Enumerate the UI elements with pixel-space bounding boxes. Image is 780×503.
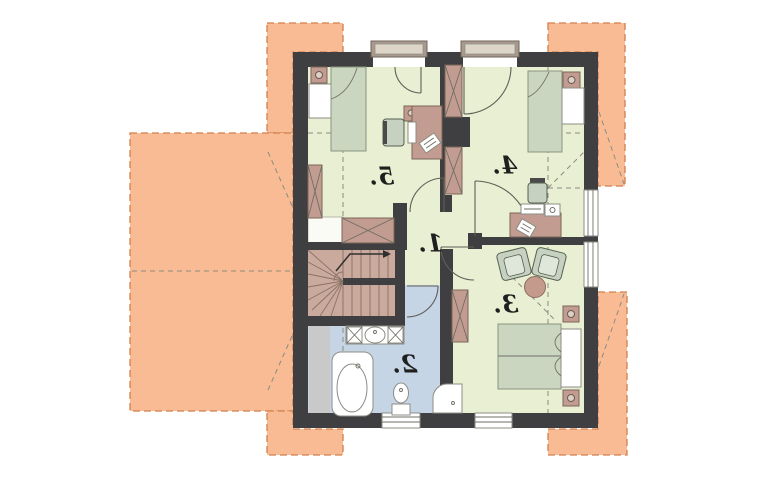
- wardrobe-room4-lower: [445, 147, 462, 194]
- wall-right-1: [584, 52, 598, 190]
- round-table: [525, 277, 546, 298]
- roof-overhang-left: [130, 133, 293, 411]
- wardrobe-room5-west: [308, 165, 322, 218]
- wall-right-3: [584, 287, 598, 428]
- nightstand-room4: [563, 72, 580, 88]
- room-label-2: 2.: [392, 350, 418, 379]
- desk-chair-room5: [383, 119, 404, 146]
- knee-wall-strip: [309, 326, 330, 413]
- wardrobe-room4-upper: [445, 65, 462, 117]
- wall-room4-room3: [480, 237, 584, 245]
- wall-bottom-2: [420, 413, 475, 428]
- floor-plan-page: 1. 2. 3. 4. 5.: [0, 0, 780, 503]
- double-bed-room3: [498, 324, 581, 389]
- nightstand-room3-top: [563, 306, 579, 322]
- room-label-4: 4.: [492, 151, 517, 180]
- wall-stairs-right: [395, 243, 405, 326]
- shower: [433, 384, 462, 413]
- window-room3-south: [475, 413, 512, 428]
- under-roof-storage: [308, 217, 343, 243]
- wall-bottom-3: [512, 413, 598, 428]
- washbasin-counter: [346, 326, 404, 344]
- nightstand-room3-bottom: [563, 390, 579, 406]
- wall-stairs-landing: [343, 278, 395, 285]
- window-room3-east: [584, 242, 598, 287]
- bathtub: [332, 352, 373, 416]
- floor-plan-canvas: 1. 2. 3. 4. 5.: [0, 0, 780, 503]
- chimney-block: [440, 117, 470, 147]
- window-room4-east: [584, 190, 598, 236]
- wall-right-2: [584, 236, 598, 242]
- room-label-3: 3.: [493, 290, 518, 319]
- nightstand-room5: [311, 67, 327, 83]
- wardrobe-room5-south: [342, 218, 394, 243]
- dormer-window-room4: [461, 41, 519, 57]
- toilet: [392, 383, 410, 415]
- wardrobe-room3-west: [452, 290, 468, 342]
- wall-partition-tip: [440, 195, 452, 212]
- wall-left: [293, 52, 308, 428]
- room-label-1: 1.: [418, 229, 443, 258]
- room-label-5: 5.: [369, 162, 394, 191]
- wall-stairs-bottom: [293, 316, 405, 326]
- desk-chair-room4: [528, 178, 547, 203]
- dormer-window-room5: [371, 41, 427, 57]
